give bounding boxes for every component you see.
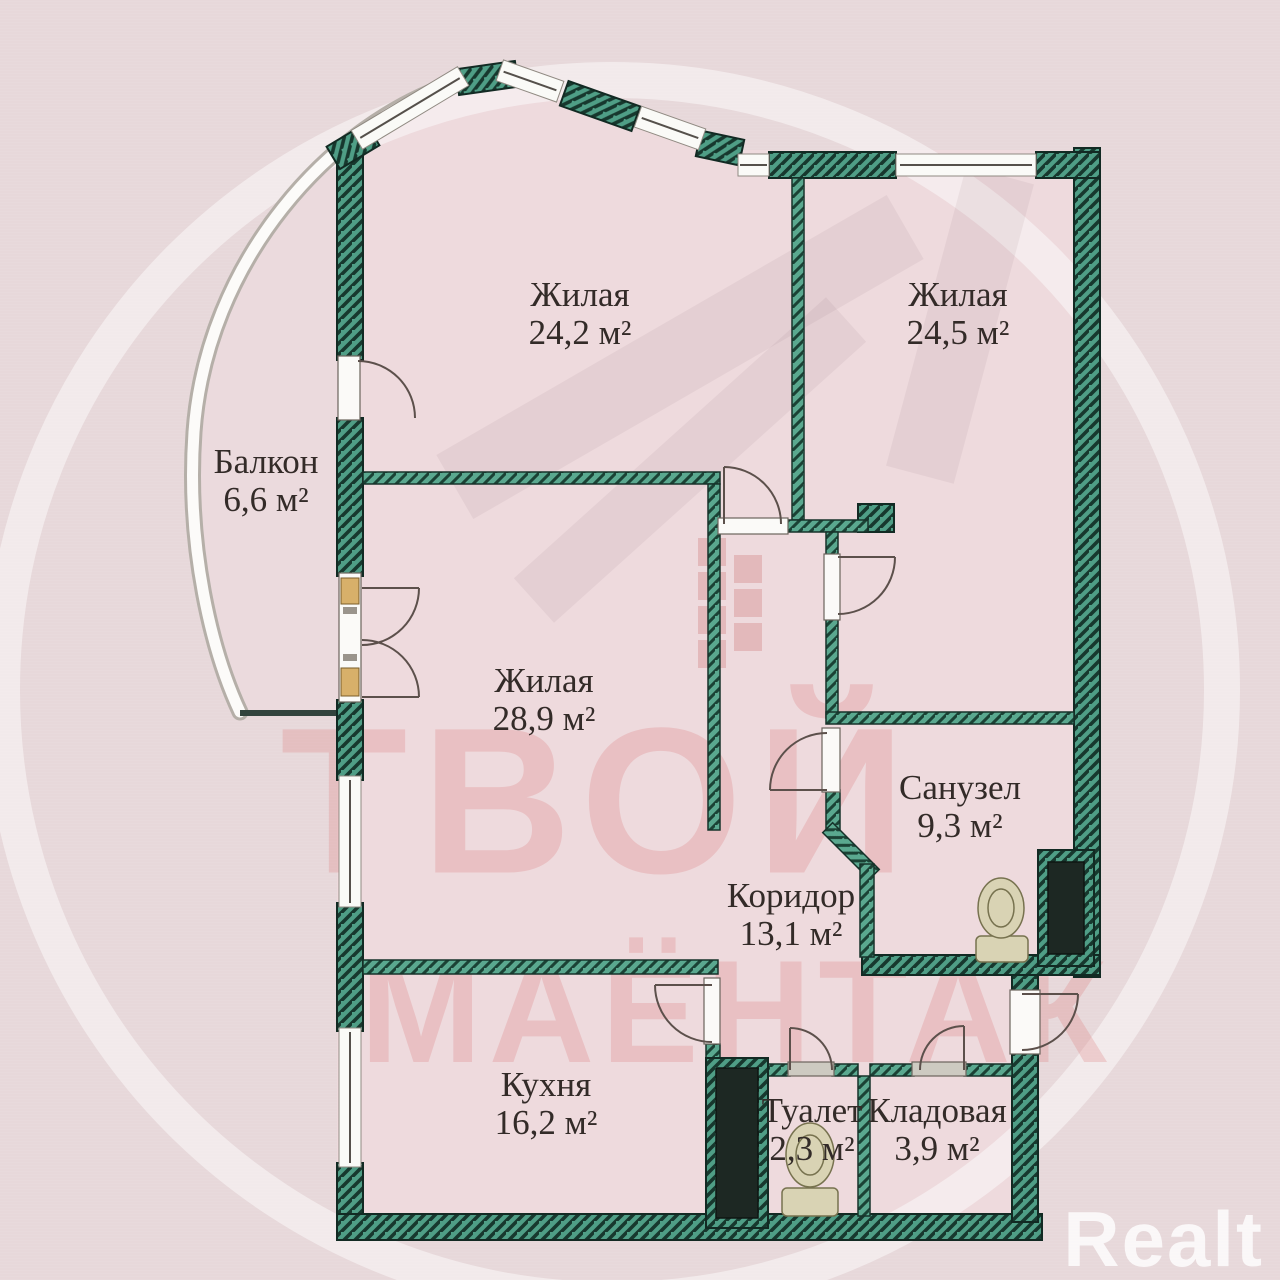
- room-label-living2: Жилая 24,5 м²: [907, 276, 1010, 352]
- bay-window-left: [351, 67, 469, 150]
- room-area: 3,9 м²: [867, 1130, 1006, 1168]
- room-area: 28,9 м²: [493, 700, 596, 738]
- room-area: 24,5 м²: [907, 314, 1010, 352]
- room-label-toilet: Туалет 2,3 м²: [762, 1092, 863, 1168]
- door-living1-corridor: [718, 467, 788, 534]
- room-area: 2,3 м²: [762, 1130, 863, 1168]
- room-label-corridor: Коридор 13,1 м²: [727, 877, 855, 953]
- room-name: Жилая: [529, 276, 632, 314]
- room-area: 9,3 м²: [899, 807, 1021, 845]
- room-name: Балкон: [214, 443, 319, 481]
- balcony-floor-divider: [240, 710, 338, 716]
- room-name: Жилая: [493, 662, 596, 700]
- room-label-living1: Жилая 24,2 м²: [529, 276, 632, 352]
- door-storage: [912, 1026, 966, 1076]
- room-name: Кухня: [495, 1066, 598, 1104]
- realt-logo-watermark: Realt: [1063, 1194, 1264, 1280]
- left-window-kitchen: [339, 1028, 361, 1167]
- top-window-small: [738, 154, 769, 176]
- plan-svg: [0, 0, 1280, 1280]
- room-name: Санузел: [899, 769, 1021, 807]
- room-name: Туалет: [762, 1092, 863, 1130]
- bay-window-right1: [496, 60, 564, 102]
- door-entrance: [1010, 990, 1078, 1054]
- room-area: 24,2 м²: [529, 314, 632, 352]
- room-label-living3: Жилая 28,9 м²: [493, 662, 596, 738]
- door-bathroom: [770, 728, 840, 792]
- door-toilet: [788, 1028, 834, 1076]
- door-kitchen: [655, 978, 720, 1044]
- floorplan-canvas: ТВОЙ МАЁНТАК: [0, 0, 1280, 1280]
- left-window-room: [339, 776, 361, 907]
- balcony-railing: [193, 82, 458, 716]
- room-name: Коридор: [727, 877, 855, 915]
- room-label-bathroom: Санузел 9,3 м²: [899, 769, 1021, 845]
- toilet-icon-bathroom: [976, 878, 1028, 962]
- windows: [339, 60, 1036, 1167]
- bay-window-right2: [634, 106, 705, 149]
- room-label-kitchen: Кухня 16,2 м²: [495, 1066, 598, 1142]
- room-label-storage: Кладовая 3,9 м²: [867, 1092, 1006, 1168]
- room-area: 6,6 м²: [214, 481, 319, 519]
- room-label-balcony: Балкон 6,6 м²: [214, 443, 319, 519]
- door-balcony-french: [339, 573, 419, 702]
- door-living2-corridor: [824, 554, 895, 620]
- top-window-large: [896, 154, 1036, 176]
- room-area: 13,1 м²: [727, 915, 855, 953]
- room-area: 16,2 м²: [495, 1104, 598, 1142]
- door-balcony-from-living1: [338, 356, 415, 420]
- room-name: Кладовая: [867, 1092, 1006, 1130]
- room-name: Жилая: [907, 276, 1010, 314]
